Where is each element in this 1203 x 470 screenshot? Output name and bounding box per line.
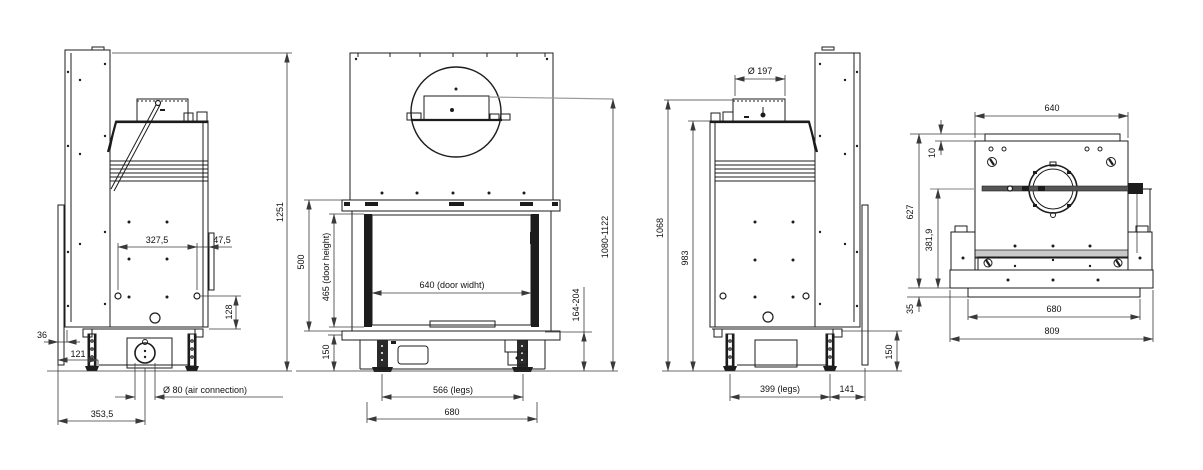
air-connection-circle: [135, 343, 155, 363]
dim-body-width-front: 680: [444, 407, 459, 417]
firebox-body-side-b: [710, 99, 817, 327]
dim-air-connection: Ø 80 (air connection): [163, 385, 247, 395]
dimensions-side-right: Ø 197 1068 983 399 (legs) 141 150: [655, 66, 902, 401]
dim-rear-height: 627: [905, 204, 915, 219]
dim-frame-height: 500: [296, 254, 306, 269]
firebox-body-side: [108, 99, 214, 327]
chimney-panel-b: [815, 47, 868, 365]
view-side-left: 327,5 47,5 128 1251 36 121 Ø 80 (air c: [37, 47, 292, 425]
dim-legs-spacing-front: 566 (legs): [433, 385, 473, 395]
dim-hearth-clearance: 164-204: [571, 288, 581, 321]
view-side-right: Ø 197 1068 983 399 (legs) 141 150: [655, 47, 902, 401]
base-and-legs-side: [83, 329, 203, 371]
dim-legs-spacing-b: 399 (legs): [760, 384, 800, 394]
base-and-legs-front: [360, 340, 545, 372]
dim-base-height-front: 150: [321, 344, 331, 359]
dim-rear-offset: 141: [839, 384, 854, 394]
dim-door-height: 465 (door height): [321, 233, 331, 302]
dim-holes-spacing: 327,5: [146, 235, 169, 245]
dim-plinth-height: 35: [905, 304, 915, 314]
dim-height-to-collar: 1068: [655, 218, 665, 238]
rear-base: [950, 226, 1153, 297]
dimensions-rear: 640 10 627 381,9 35 680 809: [905, 103, 1153, 342]
dimensions-side-left: 327,5 47,5 128 1251 36 121 Ø 80 (air c: [37, 53, 292, 425]
view-rear: 640 10 627 381,9 35 680 809: [905, 103, 1153, 342]
dim-body-width-rear: 640: [1044, 103, 1059, 113]
dim-leg-offset: 121: [70, 349, 85, 359]
dim-base-width: 809: [1044, 326, 1059, 336]
convection-box: [350, 53, 553, 200]
dim-bracket-offset: 47,5: [213, 235, 231, 245]
dim-air-center: 353,5: [91, 409, 114, 419]
dim-overall-height: 1080-1122: [600, 216, 610, 258]
dim-base-height-b: 150: [884, 344, 894, 359]
fireplace-dimension-drawing: 327,5 47,5 128 1251 36 121 Ø 80 (air c: [0, 0, 1203, 470]
flue-collar-side-b: [733, 99, 785, 122]
door-glass: [372, 215, 531, 325]
technical-drawing-page: 327,5 47,5 128 1251 36 121 Ø 80 (air c: [0, 0, 1203, 470]
base-and-legs-side-b: [712, 329, 842, 371]
view-front: 500 465 (door height) 150 640 (door widh…: [296, 53, 618, 423]
dim-plate-offset: 10: [927, 148, 937, 158]
chimney-panel: [58, 47, 110, 365]
flue-collar-front: [424, 96, 489, 120]
dim-front-gap: 36: [37, 330, 47, 340]
dim-inner-width: 680: [1046, 304, 1061, 314]
dim-damper-height: 381,9: [924, 229, 934, 252]
dim-height-to-top: 983: [680, 250, 690, 265]
rear-panel: [975, 134, 1152, 258]
dim-total-height: 1251: [275, 202, 285, 222]
dim-flue-diameter: Ø 197: [748, 66, 773, 76]
door-assembly: [342, 200, 560, 340]
door-latch: [530, 232, 538, 244]
dimensions-front: 500 465 (door height) 150 640 (door widh…: [296, 97, 618, 423]
dim-hole-height: 128: [224, 304, 234, 319]
dim-door-width: 640 (door widht): [419, 280, 484, 290]
air-slider: [430, 321, 495, 327]
damper-rod-rear: [982, 183, 1152, 253]
